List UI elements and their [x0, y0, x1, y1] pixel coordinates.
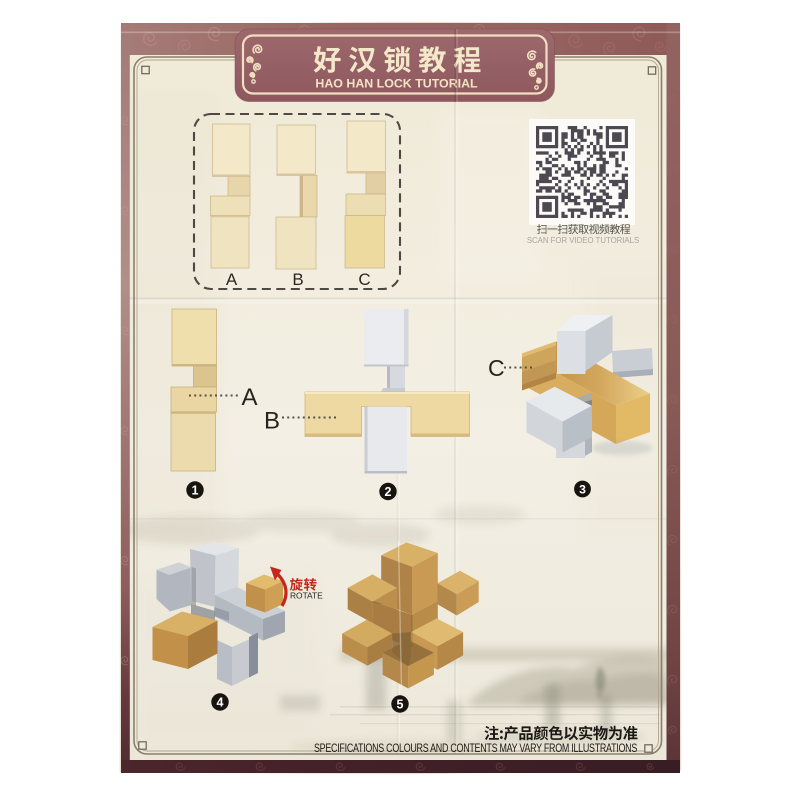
svg-text:2: 2 — [385, 485, 392, 499]
svg-text:5: 5 — [397, 698, 404, 712]
svg-text:B: B — [264, 408, 280, 435]
svg-text:1: 1 — [192, 484, 199, 498]
svg-text:B: B — [292, 270, 303, 289]
svg-text:4: 4 — [217, 696, 224, 710]
svg-text:C: C — [488, 355, 505, 381]
svg-text:ROTATE: ROTATE — [290, 591, 323, 601]
svg-text:A: A — [242, 384, 258, 411]
svg-text:SPECIFICATIONS COLOURS AND CON: SPECIFICATIONS COLOURS AND CONTENTS MAY … — [314, 742, 637, 755]
svg-text:3: 3 — [579, 483, 586, 497]
svg-text:SCAN FOR VIDEO TUTORIALS: SCAN FOR VIDEO TUTORIALS — [527, 236, 639, 245]
svg-text:HAO HAN LOCK TUTORIAL: HAO HAN LOCK TUTORIAL — [315, 77, 478, 91]
svg-text:A: A — [226, 270, 238, 289]
svg-text:C: C — [358, 270, 370, 289]
